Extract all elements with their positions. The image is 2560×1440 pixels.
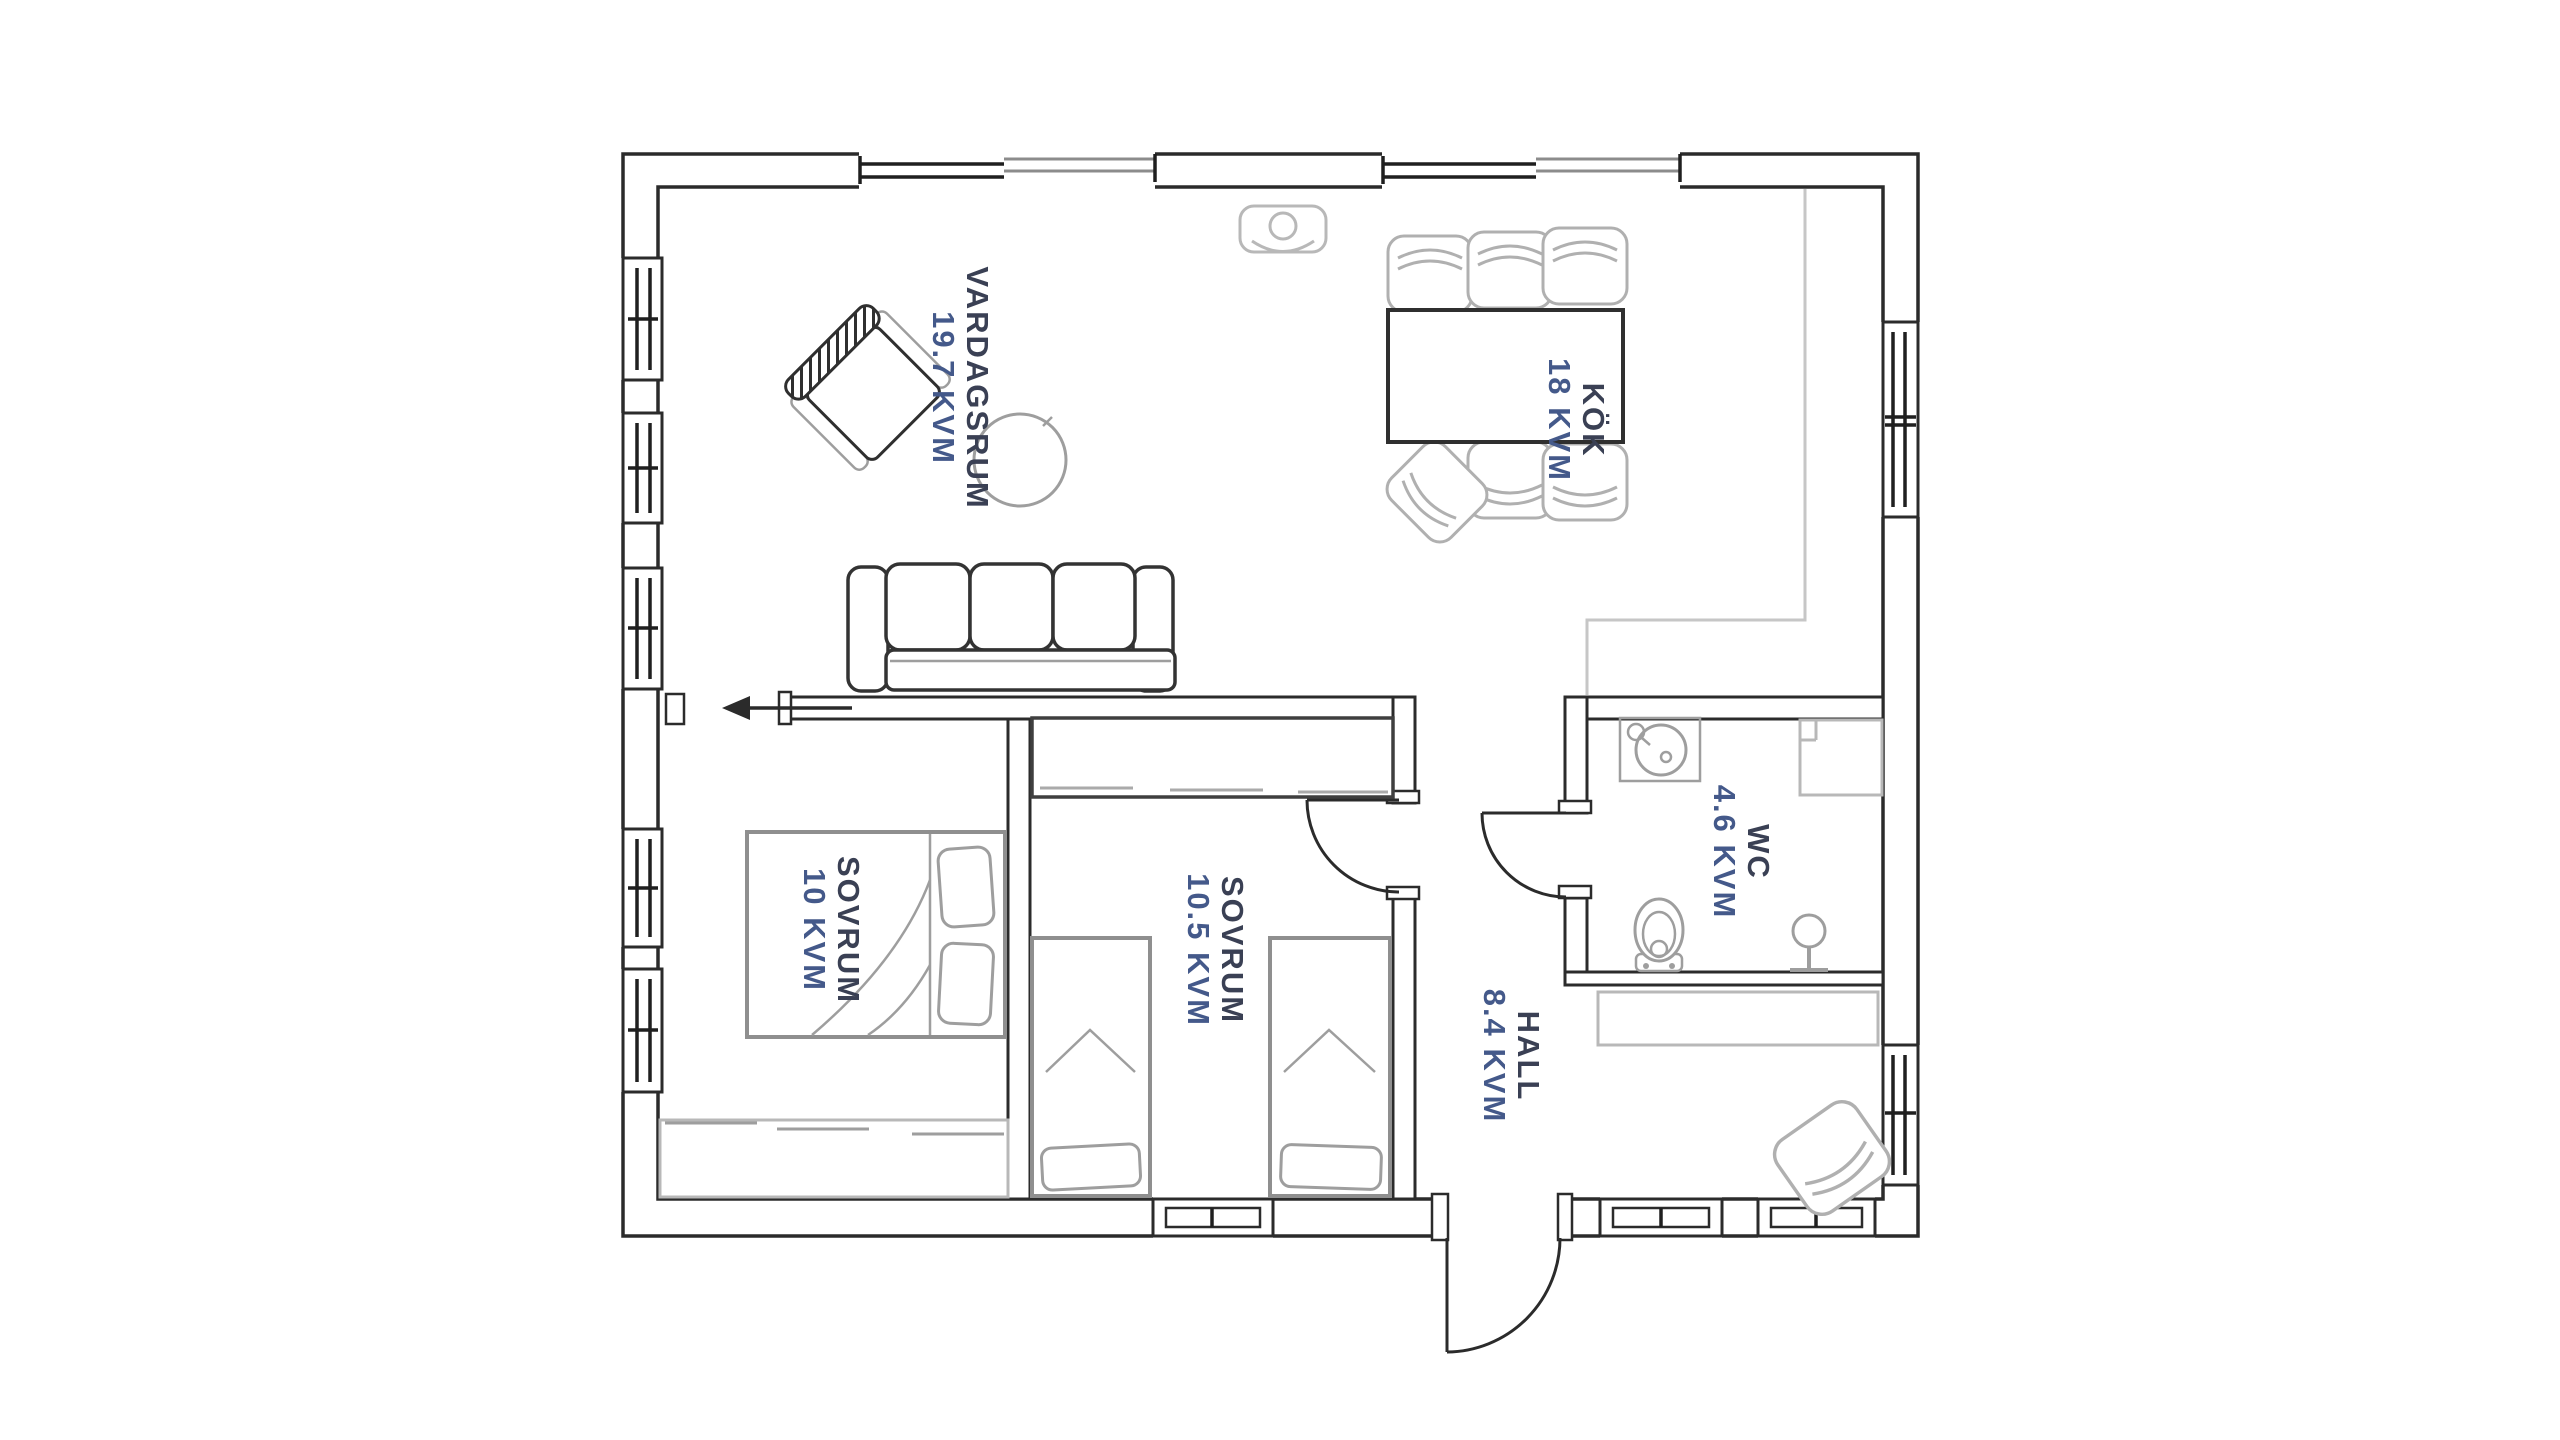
right-wall-windows (1879, 322, 1922, 1185)
floor-plan-drawing: VARDAGSRUM 19.7 KVM KÖK 18 KVM SOVRUM 10… (0, 0, 2560, 1440)
door-jamb (1432, 1194, 1448, 1240)
window-icon (1536, 150, 1680, 191)
pillow (937, 846, 994, 927)
room-label-sovrum-2: SOVRUM (1215, 876, 1250, 1024)
room-label-kok: KÖK (1576, 383, 1611, 458)
window-icon (1879, 322, 1922, 517)
door-jamb (1559, 801, 1591, 813)
sofa-icon (848, 564, 1175, 691)
ceiling-lamp-icon (1240, 206, 1326, 252)
chair-icon (1388, 236, 1472, 312)
pillow (1280, 1144, 1381, 1189)
room-label-wc: WC (1741, 824, 1776, 880)
towel-stand-icon (1790, 915, 1828, 970)
room-label-sovrum-1: SOVRUM (831, 856, 866, 1004)
window-icon (859, 150, 1004, 191)
wardrobe-icon (1032, 718, 1393, 797)
window-icon (1382, 150, 1536, 191)
room-label-hall: HALL (1511, 1011, 1546, 1102)
top-wall-windows (859, 150, 1680, 191)
window-icon (1600, 1195, 1722, 1240)
window-icon (1004, 150, 1155, 191)
window-icon (1153, 1195, 1273, 1240)
chair-icon (1468, 232, 1552, 308)
window-icon (619, 258, 666, 380)
hall-wardrobe (1598, 992, 1878, 1045)
window-icon (619, 969, 666, 1092)
entry-door (1432, 1193, 1572, 1352)
door-jamb (666, 694, 684, 724)
room-area-sovrum-1: 10 KVM (797, 868, 832, 992)
double-bed-icon (747, 832, 1005, 1037)
door-jamb (1558, 1194, 1572, 1240)
single-bed-icon (1270, 938, 1390, 1196)
room-label-vardagsrum: VARDAGSRUM (960, 266, 995, 509)
door-swing-icon (1482, 813, 1566, 897)
single-bed-icon (1032, 938, 1150, 1196)
window-icon (619, 829, 666, 947)
wc-top-wall (1565, 697, 1883, 719)
window-icon (619, 568, 666, 689)
wardrobe-icon (660, 1120, 1008, 1197)
room-area-sovrum-2: 10.5 KVM (1181, 873, 1216, 1027)
living-bedroom-wall (787, 697, 1415, 719)
room-area-hall: 8.4 KVM (1477, 989, 1512, 1124)
toilet-icon (1635, 899, 1683, 971)
bedroom2-door (1307, 800, 1399, 892)
room-area-wc: 4.6 KVM (1707, 785, 1742, 920)
room-area-kok: 18 KVM (1542, 358, 1577, 482)
wc-left-wall-upper (1565, 697, 1587, 813)
wc-door (1482, 813, 1566, 897)
floor-plan-page: VARDAGSRUM 19.7 KVM KÖK 18 KVM SOVRUM 10… (0, 0, 2560, 1440)
door-swing-icon (1447, 1238, 1560, 1352)
chair-icon (1543, 228, 1627, 304)
bedroom2-hall-wall-upper (1393, 697, 1415, 803)
door-swing-icon (1307, 800, 1399, 892)
pillow (938, 943, 994, 1026)
wc-cabinet (1800, 720, 1882, 795)
sink-icon (1620, 718, 1700, 781)
bedroom-divider-wall (1008, 719, 1030, 1199)
window-icon (619, 413, 666, 523)
room-area-vardagsrum: 19.7 KVM (926, 311, 961, 465)
bedroom2-hall-wall-lower (1393, 895, 1415, 1199)
pillow (1041, 1143, 1141, 1190)
wc-bottom-wall (1565, 972, 1883, 985)
